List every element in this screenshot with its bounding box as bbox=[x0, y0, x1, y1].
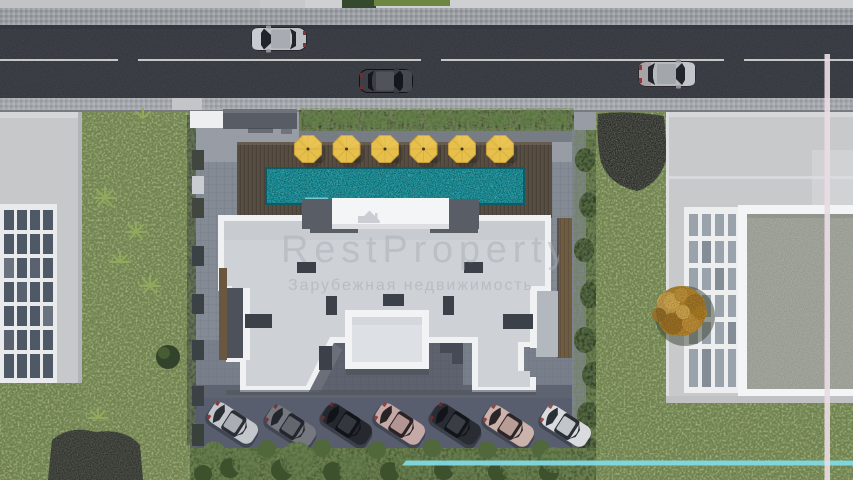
svg-text:RestProperty: RestProperty bbox=[281, 229, 572, 271]
svg-text:Зарубежная недвижимость: Зарубежная недвижимость bbox=[288, 277, 534, 294]
